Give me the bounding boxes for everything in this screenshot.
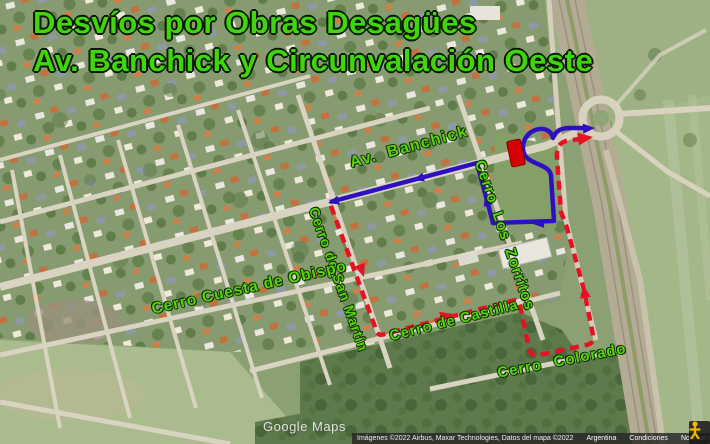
pegman-icon: [689, 421, 701, 439]
google-maps-watermark: Google Maps: [263, 419, 346, 434]
imagery-attribution: Imágenes ©2022 Airbus, Maxar Technologie…: [357, 435, 573, 442]
title-line-2: Av. Banchick y Circunvalación Oeste: [33, 42, 593, 80]
attribution-link-terms[interactable]: Condiciones: [629, 435, 668, 442]
attribution-link-region[interactable]: Argentina: [586, 435, 616, 442]
title-line-1: Desvíos por Obras Desagües: [33, 4, 593, 42]
map-title: Desvíos por Obras Desagües Av. Banchick …: [33, 4, 593, 80]
map-attribution-bar: Imágenes ©2022 Airbus, Maxar Technologie…: [352, 433, 710, 444]
map-screenshot: Desvíos por Obras Desagües Av. Banchick …: [0, 0, 710, 444]
street-view-pegman[interactable]: [689, 421, 710, 444]
